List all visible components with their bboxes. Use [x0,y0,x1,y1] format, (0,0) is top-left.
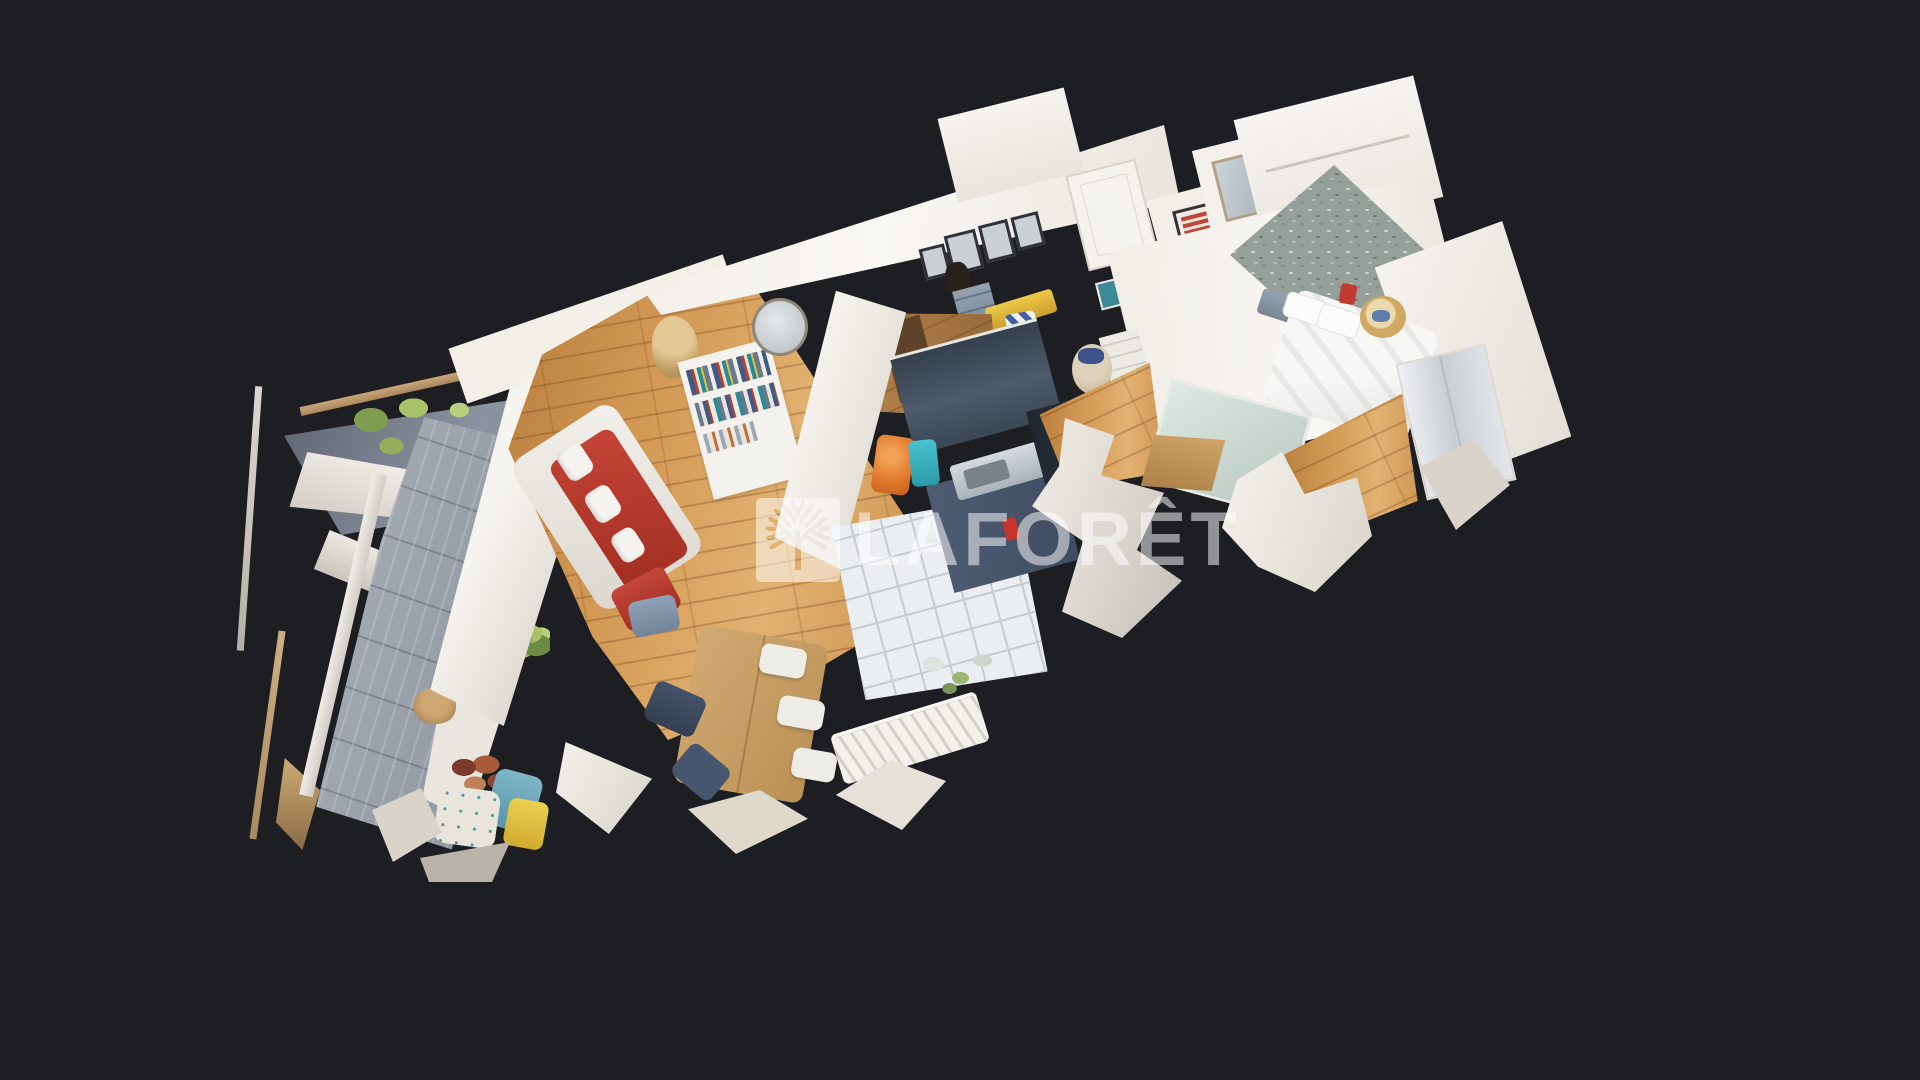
laforet-tree-logo-icon [756,498,840,582]
watermark: LAFORÊT [756,498,1241,582]
dollhouse-3d-view[interactable]: LAFORÊT [0,0,1920,1080]
chair-cushion [1372,310,1390,322]
red-object [1338,283,1357,305]
basket-contents [1078,348,1104,364]
watermark-brand-text: LAFORÊT [854,498,1241,582]
rattan-chair [1360,296,1406,338]
